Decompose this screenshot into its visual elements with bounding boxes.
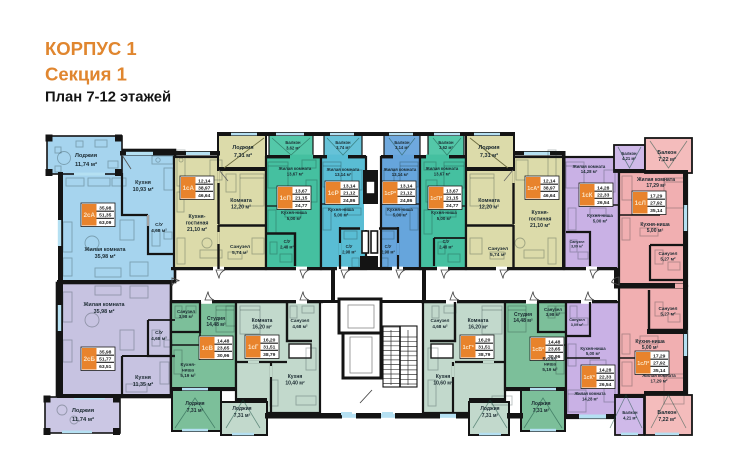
svg-text:7,31 м²: 7,31 м² xyxy=(234,152,252,159)
svg-text:13,14: 13,14 xyxy=(400,183,413,189)
svg-text:Лоджия: Лоджия xyxy=(232,406,251,412)
svg-text:14,28 м²: 14,28 м² xyxy=(581,169,598,174)
svg-text:3,62 м²: 3,62 м² xyxy=(286,145,300,150)
svg-text:4,68 м²: 4,68 м² xyxy=(432,324,448,329)
svg-text:Кухня-: Кухня- xyxy=(543,356,558,361)
svg-text:46,64: 46,64 xyxy=(198,193,211,199)
svg-text:2,98 м²: 2,98 м² xyxy=(381,249,395,254)
svg-text:гостиная: гостиная xyxy=(186,221,209,227)
svg-text:1сЛ: 1сЛ xyxy=(635,200,646,207)
svg-text:Комната: Комната xyxy=(478,198,500,204)
svg-text:Санузел: Санузел xyxy=(570,240,585,244)
svg-text:1сВ: 1сВ xyxy=(202,345,214,352)
svg-text:Санузел: Санузел xyxy=(291,318,310,323)
svg-text:10,40 м²: 10,40 м² xyxy=(285,380,305,386)
svg-text:35,98: 35,98 xyxy=(99,349,112,355)
svg-text:5,00 м²: 5,00 м² xyxy=(287,216,302,221)
svg-text:Кухня-: Кухня- xyxy=(532,210,549,216)
svg-text:16,20 м²: 16,20 м² xyxy=(468,324,488,330)
svg-text:12,14: 12,14 xyxy=(543,178,556,184)
svg-text:Балкон: Балкон xyxy=(657,150,676,156)
svg-text:27,92: 27,92 xyxy=(650,201,663,207)
svg-text:Комната: Комната xyxy=(230,198,252,204)
svg-text:ниша: ниша xyxy=(544,361,556,366)
svg-text:Лоджия: Лоджия xyxy=(232,145,253,151)
svg-text:5,00 м²: 5,00 м² xyxy=(593,218,608,223)
svg-text:14,48 м²: 14,48 м² xyxy=(206,322,226,328)
svg-text:21,10 м²: 21,10 м² xyxy=(187,227,207,233)
svg-text:1сК: 1сК xyxy=(582,192,593,199)
svg-text:Лоджия: Лоджия xyxy=(72,408,94,414)
svg-text:12,20 м²: 12,20 м² xyxy=(231,204,251,210)
svg-text:3,74 м²: 3,74 м² xyxy=(336,145,350,150)
svg-text:38,79: 38,79 xyxy=(263,352,276,358)
svg-text:Санузел: Санузел xyxy=(569,318,585,322)
svg-text:13,14 м²: 13,14 м² xyxy=(392,172,409,177)
svg-text:11,35 м²: 11,35 м² xyxy=(133,382,154,388)
svg-text:С/У: С/У xyxy=(284,239,291,244)
svg-text:КОРПУС 1: КОРПУС 1 xyxy=(45,38,137,59)
svg-text:5,00 м²: 5,00 м² xyxy=(642,345,659,351)
svg-text:Жилая комната: Жилая комната xyxy=(84,247,127,253)
svg-text:4,21 м²: 4,21 м² xyxy=(623,416,637,421)
svg-text:13,67 м²: 13,67 м² xyxy=(434,172,451,177)
svg-text:5,74 м²: 5,74 м² xyxy=(490,252,506,258)
svg-text:5,27 м²: 5,27 м² xyxy=(660,312,676,317)
svg-text:Санузел: Санузел xyxy=(659,251,678,256)
svg-text:Балкон: Балкон xyxy=(657,410,676,416)
svg-text:Санузел: Санузел xyxy=(488,246,508,252)
svg-text:Кухня: Кухня xyxy=(288,374,303,380)
svg-text:1сЛ*: 1сЛ* xyxy=(637,361,650,367)
svg-text:21,15: 21,15 xyxy=(295,196,308,202)
svg-text:26,54: 26,54 xyxy=(597,200,610,206)
svg-text:14,28 м²: 14,28 м² xyxy=(582,396,598,401)
svg-text:14,48: 14,48 xyxy=(217,338,230,344)
svg-text:Жилая комната: Жилая комната xyxy=(573,391,606,396)
svg-text:11,74 м²: 11,74 м² xyxy=(72,416,94,423)
svg-text:1сР*: 1сР* xyxy=(384,191,397,197)
svg-text:17,29: 17,29 xyxy=(653,353,666,359)
svg-text:17,29 м²: 17,29 м² xyxy=(646,183,666,189)
svg-text:2,48 м²: 2,48 м² xyxy=(280,244,294,249)
svg-text:1сК*: 1сК* xyxy=(584,375,596,381)
svg-text:3,98 м²: 3,98 м² xyxy=(546,312,561,317)
svg-text:22,33: 22,33 xyxy=(597,193,610,199)
svg-text:17,29: 17,29 xyxy=(650,193,663,199)
svg-text:14,48 м²: 14,48 м² xyxy=(513,318,533,324)
svg-text:Кухня-ниша: Кухня-ниша xyxy=(328,207,354,212)
svg-text:23,65: 23,65 xyxy=(548,347,561,353)
svg-text:21,12: 21,12 xyxy=(400,191,413,197)
svg-text:5,00 м²: 5,00 м² xyxy=(437,216,452,221)
svg-text:35,14: 35,14 xyxy=(650,208,663,214)
svg-text:2,98 м²: 2,98 м² xyxy=(342,249,356,254)
svg-text:22,33: 22,33 xyxy=(599,375,612,381)
svg-text:14,28: 14,28 xyxy=(597,185,610,191)
svg-text:гостиная: гостиная xyxy=(529,217,552,223)
svg-text:С/У: С/У xyxy=(155,222,164,228)
svg-text:Лоджия: Лоджия xyxy=(480,406,499,412)
svg-text:Санузел: Санузел xyxy=(659,306,678,311)
svg-text:4,68 м²: 4,68 м² xyxy=(151,228,167,234)
svg-text:23,65: 23,65 xyxy=(217,346,230,352)
svg-text:46,64: 46,64 xyxy=(543,193,556,199)
svg-text:11,74 м²: 11,74 м² xyxy=(75,161,97,168)
svg-text:13,14: 13,14 xyxy=(343,183,356,189)
svg-text:Кухня-ниша: Кухня-ниша xyxy=(587,213,613,218)
svg-text:10,93 м²: 10,93 м² xyxy=(133,187,154,193)
svg-text:3,14 м²: 3,14 м² xyxy=(395,145,409,150)
svg-text:26,54: 26,54 xyxy=(599,382,612,388)
svg-text:5,74 м²: 5,74 м² xyxy=(232,250,248,256)
svg-text:12,20 м²: 12,20 м² xyxy=(479,204,499,210)
svg-text:Кухня: Кухня xyxy=(135,375,151,381)
svg-text:Лоджия: Лоджия xyxy=(478,145,499,151)
svg-text:1сА*: 1сА* xyxy=(527,186,540,192)
svg-text:Жилая комната: Жилая комната xyxy=(641,373,676,378)
svg-text:4,21 м²: 4,21 м² xyxy=(622,156,636,161)
svg-text:1сВ*: 1сВ* xyxy=(532,347,545,353)
svg-text:13,67: 13,67 xyxy=(295,188,308,194)
svg-text:7,31 м²: 7,31 м² xyxy=(480,152,498,159)
svg-text:13,67: 13,67 xyxy=(446,188,459,194)
svg-text:1сП*: 1сП* xyxy=(430,196,443,202)
svg-text:3,09 м²: 3,09 м² xyxy=(571,323,584,327)
svg-text:3,09 м²: 3,09 м² xyxy=(571,244,584,248)
svg-text:38,97: 38,97 xyxy=(198,186,211,192)
svg-text:7,31 м²: 7,31 м² xyxy=(234,413,251,419)
svg-text:21,15: 21,15 xyxy=(446,196,459,202)
svg-text:51,77: 51,77 xyxy=(99,357,112,363)
svg-text:63,51: 63,51 xyxy=(99,364,112,370)
svg-text:17,29 м²: 17,29 м² xyxy=(651,379,668,384)
svg-text:35,98 м²: 35,98 м² xyxy=(94,309,115,315)
svg-text:Секция 1: Секция 1 xyxy=(45,64,127,85)
svg-text:35,98 м²: 35,98 м² xyxy=(95,254,116,260)
svg-text:31,51: 31,51 xyxy=(478,345,491,351)
svg-text:С/У: С/У xyxy=(443,239,450,244)
svg-text:24,77: 24,77 xyxy=(295,203,308,209)
svg-text:Кухня: Кухня xyxy=(436,374,451,380)
svg-text:Санузел: Санузел xyxy=(230,244,250,250)
svg-text:16,20 м²: 16,20 м² xyxy=(252,324,272,330)
svg-text:16,20: 16,20 xyxy=(263,337,276,343)
svg-text:16,20: 16,20 xyxy=(478,337,491,343)
svg-text:27,92: 27,92 xyxy=(653,361,666,367)
svg-text:13,14 м²: 13,14 м² xyxy=(335,172,352,177)
svg-text:С/У: С/У xyxy=(346,244,353,249)
svg-text:ниша: ниша xyxy=(182,367,194,372)
svg-text:1сП: 1сП xyxy=(280,195,292,202)
svg-text:2сБ: 2сБ xyxy=(84,356,96,363)
svg-text:Комната: Комната xyxy=(252,318,273,324)
svg-text:31,51: 31,51 xyxy=(263,345,276,351)
svg-text:1сА: 1сА xyxy=(183,185,195,192)
svg-text:Кухня-ниша: Кухня-ниша xyxy=(281,210,307,215)
svg-text:Жилая комната: Жилая комната xyxy=(425,166,459,171)
svg-text:Кухня-ниша: Кухня-ниша xyxy=(431,210,457,215)
svg-text:51,35: 51,35 xyxy=(99,213,112,219)
svg-text:7,22 м²: 7,22 м² xyxy=(658,417,676,423)
svg-text:4,68 м²: 4,68 м² xyxy=(151,336,167,342)
svg-text:Санузел: Санузел xyxy=(431,318,450,323)
svg-text:10,60 м²: 10,60 м² xyxy=(433,380,453,386)
svg-text:С/У: С/У xyxy=(155,330,164,336)
svg-text:13,67 м²: 13,67 м² xyxy=(287,172,304,177)
svg-text:С/У: С/У xyxy=(385,244,392,249)
svg-text:14,28: 14,28 xyxy=(599,367,612,373)
svg-text:5,19 м²: 5,19 м² xyxy=(542,367,558,372)
svg-text:Лоджия: Лоджия xyxy=(75,153,97,159)
svg-text:1сГ: 1сГ xyxy=(248,344,259,351)
svg-text:35,98: 35,98 xyxy=(99,205,112,211)
svg-text:Кухня-: Кухня- xyxy=(189,214,206,220)
svg-text:Кухня-ниша: Кухня-ниша xyxy=(387,207,413,212)
svg-text:Лоджия: Лоджия xyxy=(185,401,204,407)
svg-text:Лоджия: Лоджия xyxy=(531,401,550,407)
svg-text:7,31 м²: 7,31 м² xyxy=(482,413,499,419)
svg-text:5,00 м²: 5,00 м² xyxy=(586,351,601,356)
svg-text:21,12: 21,12 xyxy=(343,191,356,197)
svg-text:7,22 м²: 7,22 м² xyxy=(658,157,676,163)
svg-text:4,68 м²: 4,68 м² xyxy=(292,324,308,329)
svg-text:Кухня-: Кухня- xyxy=(181,362,196,367)
svg-text:38,79: 38,79 xyxy=(478,352,491,358)
svg-text:3,98 м²: 3,98 м² xyxy=(179,314,194,319)
svg-text:5,00 м²: 5,00 м² xyxy=(393,212,408,217)
svg-text:Балкон: Балкон xyxy=(285,140,301,145)
svg-text:7,31 м²: 7,31 м² xyxy=(533,408,550,414)
svg-text:Комната: Комната xyxy=(468,318,489,324)
svg-text:24,86: 24,86 xyxy=(400,198,413,204)
svg-text:2сА: 2сА xyxy=(84,212,96,219)
svg-text:30,96: 30,96 xyxy=(217,353,230,359)
svg-text:1сГ*: 1сГ* xyxy=(463,345,475,351)
svg-text:Жилая комната: Жилая комната xyxy=(83,302,126,308)
svg-text:1сР: 1сР xyxy=(328,190,339,197)
svg-text:5,00 м²: 5,00 м² xyxy=(647,228,664,234)
svg-text:24,86: 24,86 xyxy=(343,198,356,204)
svg-text:21,10 м²: 21,10 м² xyxy=(530,223,550,229)
svg-text:Балкон: Балкон xyxy=(622,410,638,415)
svg-text:5,00 м²: 5,00 м² xyxy=(334,212,349,217)
svg-text:24,77: 24,77 xyxy=(446,203,459,209)
svg-text:Кухня: Кухня xyxy=(135,180,151,186)
svg-text:38,97: 38,97 xyxy=(543,186,556,192)
svg-text:План 7-12 этажей: План 7-12 этажей xyxy=(45,90,171,106)
svg-text:5,27 м²: 5,27 м² xyxy=(660,257,676,262)
svg-text:5,19 м²: 5,19 м² xyxy=(180,373,196,378)
svg-text:12,14: 12,14 xyxy=(198,178,211,184)
svg-text:63,09: 63,09 xyxy=(99,220,112,226)
svg-text:Жилая комната: Жилая комната xyxy=(278,166,312,171)
svg-text:7,31 м²: 7,31 м² xyxy=(187,408,204,414)
svg-text:3,62 м²: 3,62 м² xyxy=(439,145,453,150)
svg-text:2,48 м²: 2,48 м² xyxy=(439,244,453,249)
svg-text:14,48: 14,48 xyxy=(548,339,561,345)
